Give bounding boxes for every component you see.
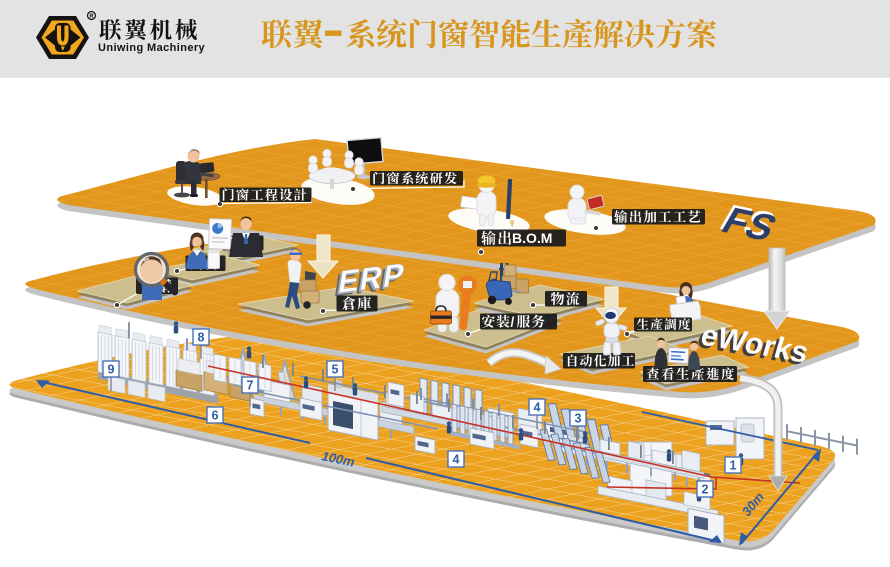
svg-text:6: 6	[212, 409, 219, 423]
svg-text:Uniwing Machinery: Uniwing Machinery	[98, 42, 206, 54]
svg-text:4: 4	[453, 453, 460, 467]
svg-text:2: 2	[702, 483, 709, 497]
svg-text:B.O.M: B.O.M	[512, 230, 552, 246]
svg-text:5: 5	[332, 363, 339, 377]
svg-text:8: 8	[198, 331, 205, 345]
svg-text:9: 9	[108, 363, 115, 377]
svg-text:7: 7	[247, 379, 254, 393]
svg-text:R: R	[89, 14, 94, 20]
svg-text:1: 1	[730, 459, 737, 473]
svg-text:3: 3	[575, 412, 582, 426]
svg-text:4: 4	[534, 401, 541, 415]
svg-text:/: /	[511, 315, 515, 330]
